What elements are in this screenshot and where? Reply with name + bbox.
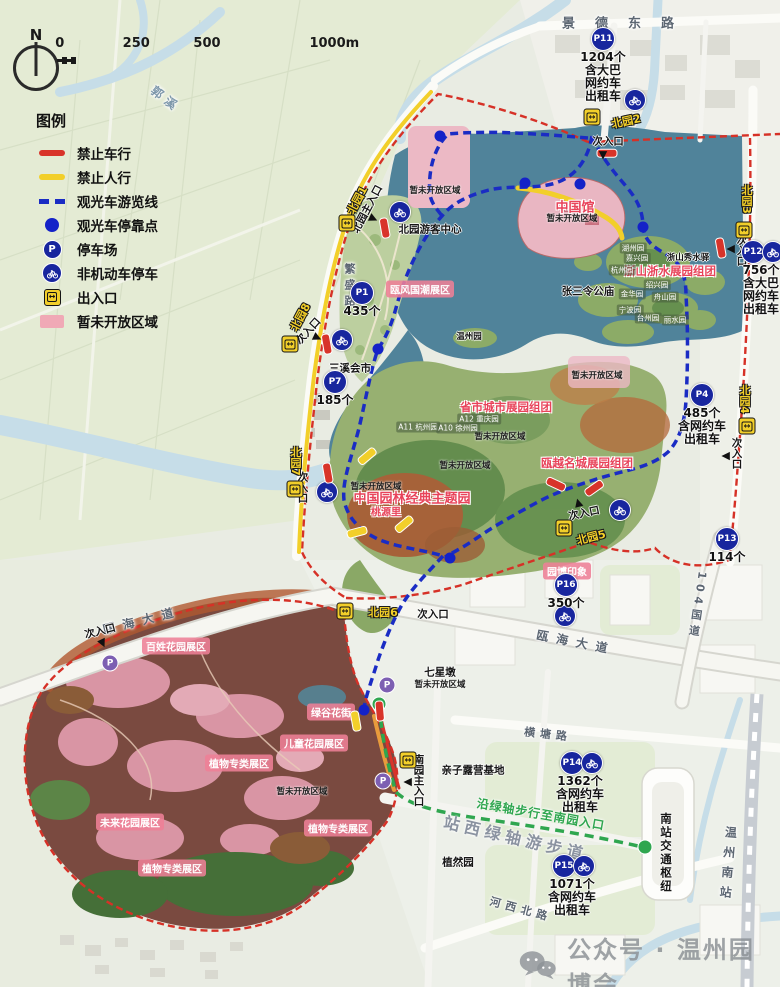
small-parking-icon: P <box>102 655 119 672</box>
legend-item: P停车场 <box>36 237 158 261</box>
scalebar-tick: 0 <box>55 36 64 51</box>
map-label: 丽水园 <box>662 315 689 326</box>
legend-item: ↔出入口 <box>36 285 158 309</box>
scalebar: 02505001000m <box>57 36 340 65</box>
legend-item: 观光车停靠点 <box>36 213 158 237</box>
parking-icon-p4: P4 <box>690 383 714 407</box>
entrance-gate-icon: ↔ <box>287 481 304 498</box>
map-label: 未来花园展区 <box>96 814 164 831</box>
parking-capacity-text: 350个 <box>547 597 584 610</box>
map-label: 暂未开放区域 <box>414 678 465 690</box>
entrance-gate-icon: ↔ <box>282 336 299 353</box>
road-ouhai-avenue-west: 瓯海大道 <box>101 602 183 638</box>
legend-item-label: 非机动车停车 <box>77 263 158 283</box>
map-label: 次入口 <box>730 437 745 469</box>
parking-icon-p7: P7 <box>323 370 347 394</box>
entrance-arrow-icon: ▲ <box>97 637 109 651</box>
map-label: 北园游客中心 <box>399 222 462 237</box>
entrance-gate-icon: ↔ <box>337 603 354 620</box>
legend-item-label: 观光车停靠点 <box>77 215 158 235</box>
entrance-gate-icon: ↔ <box>739 418 756 435</box>
scalebar-tick: 1000m <box>309 36 359 51</box>
map-label: 中国馆 <box>555 197 594 216</box>
map-label: 杭州园 <box>609 265 636 276</box>
road-ouhai-avenue-east: 瓯海大道 <box>535 626 617 658</box>
legend-item-label: 暂未开放区域 <box>77 311 158 331</box>
legend-swatch-bdot <box>36 218 68 232</box>
map-label: 植物专类展区 <box>138 860 206 877</box>
map-label: 中国园林经典主题园 <box>353 488 470 507</box>
entrance-gate-icon: ↔ <box>736 222 753 239</box>
legend-swatch-yline <box>36 174 68 180</box>
watermark: 公众号 · 温州园博会 <box>518 930 780 987</box>
map-label: 次入口 <box>417 607 449 622</box>
map-label: 北园7 <box>287 446 303 476</box>
entrance-gate-icon: ↔ <box>556 520 573 537</box>
no-pedestrian-bar <box>346 525 368 539</box>
map-label: 舟山园 <box>652 292 679 303</box>
map-label: 浙山浙水展园组团 <box>624 263 716 279</box>
no-vehicle-bar <box>379 217 391 239</box>
parking-icon-p11: P11 <box>591 27 615 51</box>
map-label: 亲子露营基地 <box>442 763 505 778</box>
map-label: 暂未开放区域 <box>546 212 597 224</box>
parking-icon-p16: P16 <box>554 573 578 597</box>
bicycle-parking-icon <box>581 752 603 774</box>
no-vehicle-bar <box>375 700 385 722</box>
map-label: 北园5 <box>575 526 608 549</box>
map-label: 瓯越名城展园组团 <box>541 455 633 471</box>
map-label: 植物专类展区 <box>205 755 273 772</box>
parking-icon-p13: P13 <box>715 527 739 551</box>
expo-map: 景德东路郭溪繁盛路瓯海大道瓯海大道104国道横塘路河西北路温州南站南站交通枢纽站… <box>0 0 780 987</box>
map-label: 暂未开放区域 <box>474 430 525 442</box>
map-label: 金华园 <box>619 289 646 300</box>
road-hexi-north: 河西北路 <box>488 893 554 925</box>
scalebar-tick: 500 <box>193 36 220 51</box>
map-label: 北园3 <box>738 184 754 214</box>
map-label: 北园4 <box>736 384 752 414</box>
map-label: 绿谷花街 <box>307 704 355 721</box>
map-label: 省市城市展园组团 <box>460 399 552 415</box>
wenzhou-south-station-label: 温州南站 <box>716 825 740 906</box>
map-label: 绍兴园 <box>644 280 671 291</box>
legend-swatch-bdash <box>36 199 68 204</box>
parking-capacity-text: 485个含网约车出租车 <box>678 407 726 446</box>
watermark-text: 公众号 · 温州园博会 <box>567 930 780 987</box>
legend-swatch-mbike <box>36 263 68 283</box>
scalebar-bar <box>57 56 76 65</box>
map-label: 温州园 <box>456 330 482 342</box>
map-label: 儿童花园展区 <box>280 735 348 752</box>
road-jingde-east: 景德东路 <box>562 13 694 32</box>
legend-swatch-parea <box>36 315 68 328</box>
entrance-gate-icon: ↔ <box>339 215 356 232</box>
legend-title: 图例 <box>36 110 158 131</box>
map-label: 北园2 <box>610 110 642 132</box>
tour-bus-stop-dot <box>445 553 456 564</box>
map-label: A10 徐州园 <box>436 423 480 434</box>
small-parking-icon: P <box>379 677 396 694</box>
compass-circle-icon <box>13 45 59 91</box>
parking-capacity-text: 1071个含网约车出租车 <box>548 878 596 917</box>
map-label: 次入口 <box>592 134 624 149</box>
map-label: A11 杭州园 <box>396 422 440 433</box>
entrance-arrow-icon: ▲ <box>725 245 736 253</box>
bicycle-parking-icon <box>316 481 338 503</box>
no-pedestrian-bar <box>356 446 378 466</box>
map-label: 植然园 <box>442 855 474 870</box>
map-label: 台州园 <box>635 313 662 324</box>
map-label: 百姓花园展区 <box>142 638 210 655</box>
legend-item: 禁止车行 <box>36 141 158 165</box>
wechat-icon <box>518 947 557 983</box>
north-compass: N <box>12 26 60 91</box>
tour-bus-stop-dot <box>373 344 384 355</box>
entrance-gate-icon: ↔ <box>584 109 601 126</box>
legend-item: 非机动车停车 <box>36 261 158 285</box>
map-label: 北园6 <box>368 604 398 620</box>
legend-item-label: 出入口 <box>77 287 118 307</box>
scalebar-ticks: 02505001000m <box>57 36 340 52</box>
tour-bus-stop-dot <box>520 178 531 189</box>
legend: 图例 禁止车行禁止人行观光车游览线观光车停靠点P停车场非机动车停车↔出入口暂未开… <box>36 110 158 333</box>
map-label: 北园1 <box>343 183 371 217</box>
bicycle-parking-icon <box>624 89 646 111</box>
legend-item-label: 观光车游览线 <box>77 191 158 211</box>
legend-item-label: 停车场 <box>77 239 118 259</box>
map-label: 七星墩 <box>424 665 456 680</box>
map-label: 暂未开放区域 <box>409 184 460 196</box>
parking-capacity-text: 1362个含网约车出租车 <box>556 775 604 814</box>
parking-icon-p1: P1 <box>350 281 374 305</box>
parking-capacity-text: 185个 <box>316 394 353 407</box>
parking-capacity-text: 435个 <box>343 305 380 318</box>
no-pedestrian-bar <box>393 514 415 534</box>
entrance-arrow-icon: ▲ <box>599 151 607 162</box>
legend-swatch-rline <box>36 150 68 156</box>
entrance-gate-icon: ↔ <box>400 752 417 769</box>
south-station-hub-label: 南站交通枢纽 <box>658 813 674 894</box>
entrance-arrow-icon: ▲ <box>572 496 583 509</box>
parking-capacity-text: 1204个含大巴网约车出租车 <box>580 51 625 103</box>
no-vehicle-bar <box>545 476 568 493</box>
map-label: 嘉兴园 <box>624 253 651 264</box>
map-label: 暂未开放区域 <box>439 459 490 471</box>
scalebar-tick: 250 <box>123 36 150 51</box>
road-g104: 104国道 <box>684 570 710 642</box>
entrance-arrow-icon: ▲ <box>402 778 413 786</box>
map-label: 桃源里 <box>371 504 401 519</box>
legend-item: 暂未开放区域 <box>36 309 158 333</box>
map-label: A12 重庆园 <box>457 414 501 425</box>
map-label: 湖州园 <box>620 243 647 254</box>
bicycle-parking-icon <box>609 499 631 521</box>
legend-swatch-mgate: ↔ <box>36 289 68 306</box>
tour-bus-stop-dot <box>638 222 649 233</box>
map-label: 暂未开放区域 <box>350 480 401 492</box>
tour-bus-stop-dot <box>435 131 446 142</box>
legend-item: 观光车游览线 <box>36 189 158 213</box>
parking-capacity-text: 114个 <box>708 551 745 564</box>
map-label: 宁波园 <box>617 305 644 316</box>
map-label: 暂未开放区域 <box>571 369 622 381</box>
tour-bus-stop-dot <box>359 705 370 716</box>
bicycle-parking-icon <box>762 241 780 263</box>
bicycle-parking-icon <box>573 855 595 877</box>
map-label: 浙山秀水驿 <box>667 251 710 263</box>
small-parking-icon: P <box>375 773 392 790</box>
entrance-arrow-icon: ▲ <box>367 213 381 225</box>
greenway-node-dot <box>638 840 653 855</box>
entrance-arrow-icon: ▲ <box>720 452 731 460</box>
bicycle-parking-icon <box>389 201 411 223</box>
legend-item-label: 禁止人行 <box>77 167 131 187</box>
legend-item-label: 禁止车行 <box>77 143 131 163</box>
map-label: 北园8 <box>286 300 314 334</box>
parking-capacity-text: 756个含大巴网约车出租车 <box>742 264 779 316</box>
tour-bus-stop-dot <box>575 179 586 190</box>
legend-item: 禁止人行 <box>36 165 158 189</box>
legend-swatch-mpk: P <box>36 240 68 259</box>
no-vehicle-bar <box>583 478 605 497</box>
map-label: 暂未开放区域 <box>276 785 327 797</box>
map-label: 植物专类展区 <box>304 820 372 837</box>
map-label: 瓯风国潮展区 <box>386 281 454 298</box>
road-hengtang: 横塘路 <box>523 724 572 745</box>
map-label: 张三令公庙 <box>562 284 615 299</box>
bicycle-parking-icon <box>331 329 353 351</box>
